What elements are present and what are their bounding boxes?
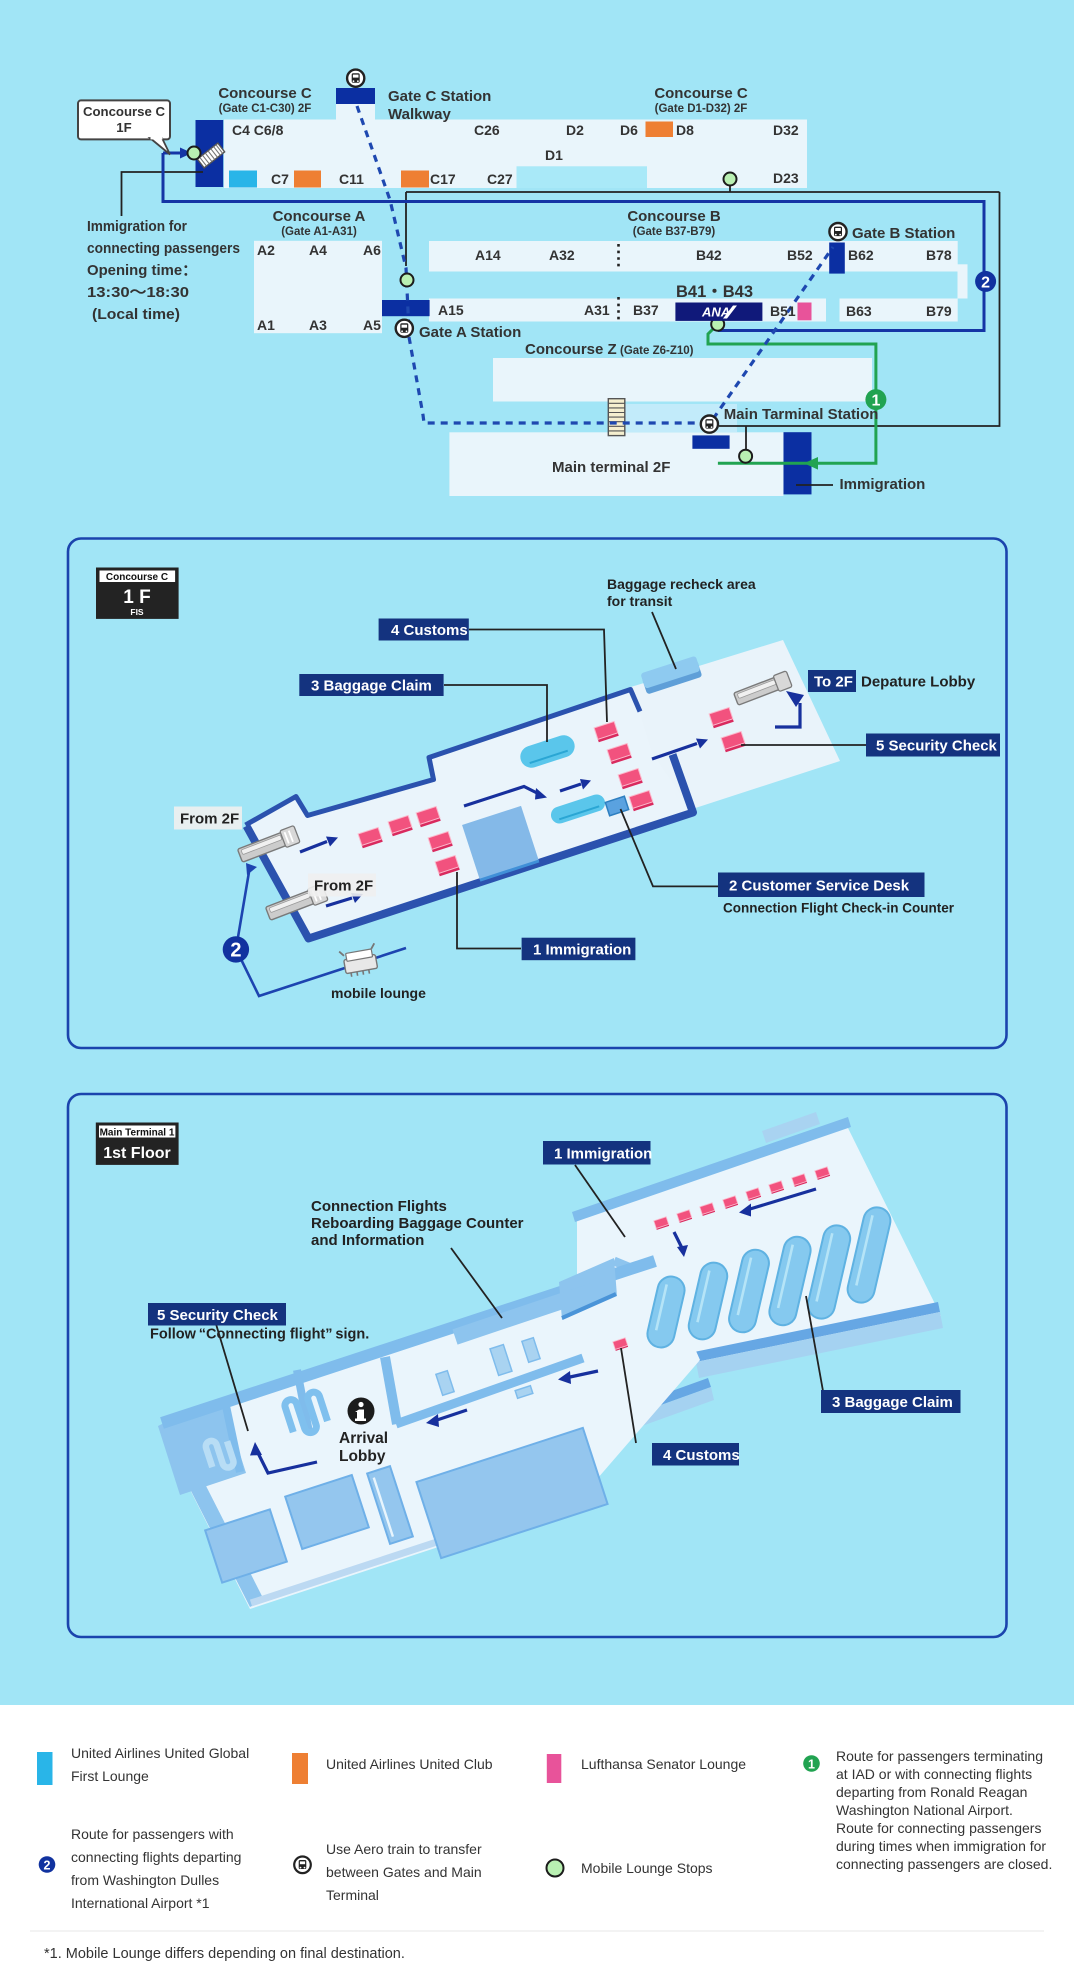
svg-text:B42: B42: [696, 247, 722, 263]
svg-text:mobile lounge: mobile lounge: [331, 985, 426, 1001]
svg-text:B37: B37: [633, 302, 659, 318]
svg-text:Concourse C: Concourse C: [654, 85, 748, 102]
svg-text:Main terminal 2F: Main terminal 2F: [552, 459, 670, 476]
svg-text:1st Floor: 1st Floor: [103, 1145, 171, 1162]
svg-text:Use Aero train to transfer: Use Aero train to transfer: [326, 1841, 482, 1857]
svg-text:2 Customer Service Desk: 2 Customer Service Desk: [729, 878, 910, 895]
svg-text:A15: A15: [438, 302, 464, 318]
svg-text:(Gate A1-A31): (Gate A1-A31): [281, 226, 357, 238]
svg-text:and Information: and Information: [311, 1232, 424, 1249]
svg-text:1 Immigration: 1 Immigration: [533, 942, 631, 959]
svg-text:Connection Flights: Connection Flights: [311, 1198, 447, 1215]
svg-text:D1: D1: [545, 147, 563, 163]
svg-text:Reboarding Baggage Counter: Reboarding Baggage Counter: [311, 1215, 524, 1232]
svg-text:A1: A1: [257, 317, 275, 333]
svg-text:A6: A6: [363, 242, 381, 258]
svg-text:A5: A5: [363, 317, 381, 333]
svg-text:To 2F: To 2F: [814, 674, 853, 691]
svg-text:A2: A2: [257, 242, 275, 258]
svg-text:during times when immigration: during times when immigration for: [836, 1838, 1046, 1854]
svg-text:(Local time): (Local time): [92, 306, 180, 323]
svg-text:B63: B63: [846, 303, 872, 319]
svg-text:from Washington Dulles: from Washington Dulles: [71, 1872, 219, 1888]
svg-text:A4: A4: [309, 242, 327, 258]
svg-text:B51: B51: [770, 303, 796, 319]
svg-text:Lufthansa Senator Lounge: Lufthansa Senator Lounge: [581, 1756, 746, 1772]
svg-text:From 2F: From 2F: [314, 878, 373, 895]
svg-text:Terminal: Terminal: [326, 1887, 379, 1903]
svg-text:B52: B52: [787, 247, 813, 263]
svg-text:B41・B43: B41・B43: [676, 283, 753, 301]
svg-text:Main Terminal 1: Main Terminal 1: [100, 1128, 175, 1139]
svg-text:between Gates and Main: between Gates and Main: [326, 1864, 482, 1880]
svg-text:connecting flights departing: connecting flights departing: [71, 1849, 241, 1865]
svg-text:Immigration: Immigration: [840, 476, 926, 493]
svg-text:First Lounge: First Lounge: [71, 1768, 149, 1784]
svg-text:Walkway: Walkway: [388, 106, 451, 123]
svg-text:C26: C26: [474, 122, 500, 138]
svg-text:Connection Flight Check-in Cou: Connection Flight Check-in Counter: [723, 901, 955, 916]
svg-text:Main Tarminal Station: Main Tarminal Station: [724, 406, 879, 423]
svg-text:A31: A31: [584, 302, 610, 318]
svg-text:Follow “Connecting flight” sig: Follow “Connecting flight” sign.: [150, 1327, 369, 1343]
svg-text:Gate A Station: Gate A Station: [419, 324, 521, 341]
svg-text:*1. Mobile Lounge differs depe: *1. Mobile Lounge differs depending on f…: [44, 1946, 405, 1962]
svg-text:13:30～18:30: 13:30～18:30: [87, 284, 189, 301]
svg-text:2: 2: [230, 939, 241, 961]
svg-text:Concourse C: Concourse C: [106, 572, 168, 583]
svg-text:D8: D8: [676, 122, 694, 138]
svg-text:5 Security Check: 5 Security Check: [157, 1307, 279, 1324]
svg-text:connecting passengers are clos: connecting passengers are closed.: [836, 1856, 1052, 1872]
svg-text:Baggage recheck area: Baggage recheck area: [607, 576, 756, 592]
svg-text:at IAD or with connecting flig: at IAD or with connecting flights: [836, 1766, 1032, 1782]
svg-text:United Airlines United Global: United Airlines United Global: [71, 1745, 249, 1761]
svg-text:1 F: 1 F: [123, 587, 150, 608]
svg-text:3 Baggage Claim: 3 Baggage Claim: [311, 678, 432, 695]
svg-text:5 Security Check: 5 Security Check: [876, 738, 998, 755]
svg-text:Gate B Station: Gate B Station: [852, 225, 955, 242]
svg-text:B78: B78: [926, 247, 952, 263]
svg-text:(Gate D1-D32) 2F: (Gate D1-D32) 2F: [655, 103, 748, 115]
svg-text:Route for connecting passenger: Route for connecting passengers: [836, 1820, 1041, 1836]
svg-text:Opening time：: Opening time：: [87, 262, 197, 279]
svg-text:International Airport *1: International Airport *1: [71, 1895, 210, 1911]
svg-text:C17: C17: [430, 171, 456, 187]
svg-text:(Gate C1-C30) 2F: (Gate C1-C30) 2F: [219, 103, 312, 115]
svg-text:connecting passengers: connecting passengers: [87, 240, 240, 257]
svg-text:United Airlines United Club: United Airlines United Club: [326, 1756, 493, 1772]
svg-text:C4 C6/8: C4 C6/8: [232, 122, 284, 138]
svg-text:B79: B79: [926, 303, 952, 319]
svg-text:C7: C7: [271, 171, 289, 187]
svg-text:(Gate Z6-Z10): (Gate Z6-Z10): [620, 345, 694, 357]
svg-text:Route for passengers terminati: Route for passengers terminating: [836, 1748, 1043, 1764]
svg-text:D23: D23: [773, 170, 799, 186]
svg-text:A32: A32: [549, 247, 575, 263]
svg-text:Arrival: Arrival: [339, 1430, 388, 1447]
svg-text:departing from Ronald Reagan: departing from Ronald Reagan: [836, 1784, 1027, 1800]
svg-text:Concourse C: Concourse C: [218, 85, 312, 102]
svg-text:2: 2: [981, 275, 990, 292]
svg-text:B62: B62: [848, 247, 874, 263]
svg-text:C11: C11: [339, 171, 364, 187]
svg-text:D32: D32: [773, 122, 799, 138]
svg-text:Depature Lobby: Depature Lobby: [861, 674, 976, 691]
svg-text:Lobby: Lobby: [339, 1448, 386, 1465]
svg-text:Mobile Lounge Stops: Mobile Lounge Stops: [581, 1860, 713, 1876]
svg-text:Route for passengers with: Route for passengers with: [71, 1826, 234, 1842]
svg-text:Concourse A: Concourse A: [273, 208, 366, 225]
svg-text:C27: C27: [487, 171, 513, 187]
svg-text:1: 1: [808, 1757, 815, 1771]
svg-text:A3: A3: [309, 317, 327, 333]
svg-text:3 Baggage Claim: 3 Baggage Claim: [832, 1394, 953, 1411]
svg-text:Gate C Station: Gate C Station: [388, 88, 491, 105]
svg-text:1F: 1F: [116, 120, 131, 135]
svg-text:From 2F: From 2F: [180, 811, 239, 828]
svg-text:for transit: for transit: [607, 593, 673, 609]
svg-text:A14: A14: [475, 247, 501, 263]
svg-text:Washington National Airport.: Washington National Airport.: [836, 1802, 1013, 1818]
svg-text:Concourse C: Concourse C: [83, 104, 166, 119]
svg-text:Concourse B: Concourse B: [627, 208, 721, 225]
svg-text:4 Customs: 4 Customs: [391, 622, 468, 639]
svg-text:FIS: FIS: [130, 607, 144, 617]
svg-text:Immigration for: Immigration for: [87, 218, 187, 235]
svg-text:D2: D2: [566, 122, 584, 138]
svg-text:1 Immigration: 1 Immigration: [554, 1146, 652, 1163]
svg-text:4 Customs: 4 Customs: [663, 1447, 740, 1464]
svg-text:(Gate B37-B79): (Gate B37-B79): [633, 226, 716, 238]
svg-text:2: 2: [44, 1858, 51, 1872]
svg-text:Concourse Z: Concourse Z: [525, 341, 617, 358]
svg-text:D6: D6: [620, 122, 638, 138]
